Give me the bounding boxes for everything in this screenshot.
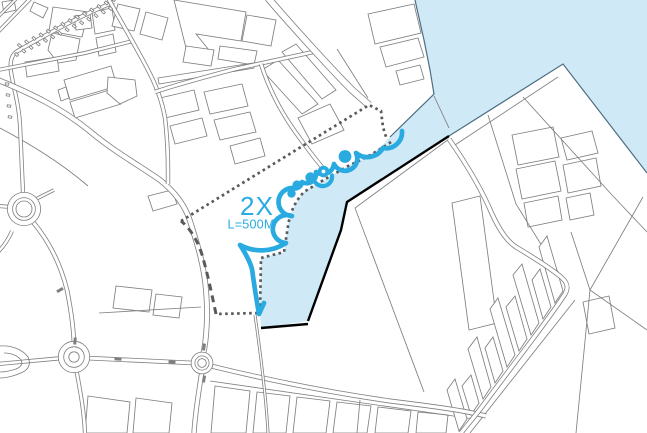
svg-text:L=500M: L=500M (228, 217, 275, 231)
